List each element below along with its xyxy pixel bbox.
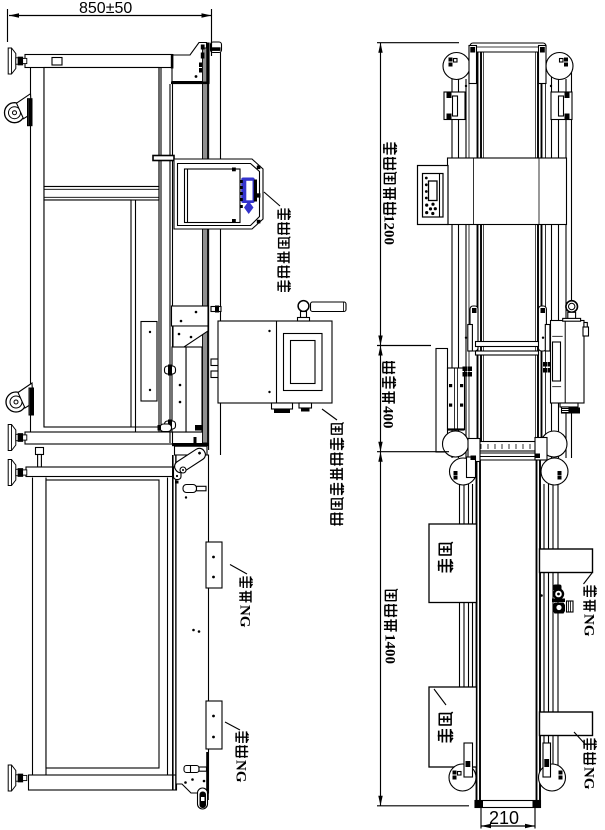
svg-text:1400: 1400 [382, 634, 398, 664]
svg-text:NG: NG [581, 767, 597, 790]
svg-text:NG: NG [233, 760, 249, 783]
svg-text:400: 400 [380, 406, 396, 429]
svg-text:NG: NG [237, 605, 253, 628]
svg-text:850±50: 850±50 [79, 0, 132, 17]
svg-text:NG: NG [581, 614, 597, 637]
svg-text:1200: 1200 [381, 215, 397, 245]
svg-text:210: 210 [489, 808, 519, 828]
